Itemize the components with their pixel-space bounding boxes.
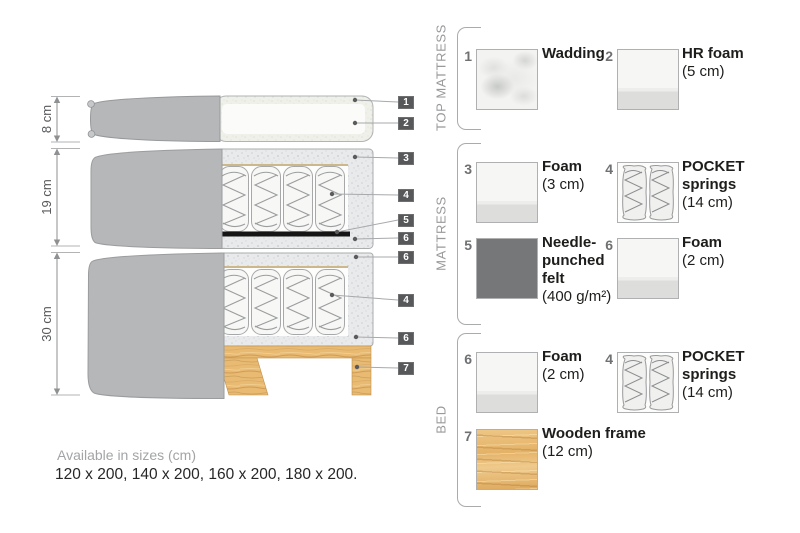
- section-title-bed: BED: [434, 390, 449, 450]
- dimension-lines: [51, 97, 80, 396]
- legend-number: 2: [599, 48, 613, 64]
- bed-section: [88, 253, 373, 399]
- swatch-pocket-springs-bed: [617, 352, 679, 413]
- dim-label-19cm: 19 cm: [39, 175, 55, 219]
- felt-layer: [219, 232, 350, 237]
- legend-item-name: Foam: [682, 234, 794, 252]
- legend-item-hr-foam: HR foam (5 cm): [682, 45, 794, 81]
- legend-item-pocket-springs: POCKET springs (14 cm): [682, 158, 794, 212]
- legend-item-name: POCKET springs: [682, 158, 794, 194]
- callout-chip-1: 1: [398, 96, 414, 109]
- available-sizes-list: 120 x 200, 140 x 200, 160 x 200, 180 x 2…: [55, 466, 358, 484]
- section-title-mattress: MATTRESS: [434, 189, 449, 279]
- mattress-construction-infographic: 1 2 3 4 5 6 6 4 6 7 8 cm 19 cm 30 cm TOP…: [0, 0, 800, 533]
- handle-button: [88, 101, 95, 108]
- swatch-foam-3cm: [476, 162, 538, 223]
- legend-number: 4: [599, 351, 613, 367]
- swatch-foam-2cm: [617, 238, 679, 299]
- handle-button: [88, 131, 95, 138]
- legend-item-size: (12 cm): [542, 443, 692, 461]
- legend-item-name: HR foam: [682, 45, 794, 63]
- callout-chip-5: 5: [398, 214, 414, 227]
- legend-item-name: Wooden frame: [542, 425, 692, 443]
- callout-chip-4: 4: [398, 189, 414, 202]
- legend-number: 6: [599, 237, 613, 253]
- callout-chip-4b: 4: [398, 294, 414, 307]
- callout-chip-7: 7: [398, 362, 414, 375]
- legend-number: 6: [458, 351, 472, 367]
- swatch-hr-foam: [617, 49, 679, 110]
- swatch-wood: [476, 429, 538, 490]
- callout-chip-6c: 6: [398, 332, 414, 345]
- legend-item-size: (14 cm): [682, 194, 794, 212]
- wood-leg-left: [218, 358, 268, 395]
- available-sizes-title: Available in sizes (cm): [57, 447, 196, 463]
- swatch-felt: [476, 238, 538, 299]
- dim-label-30cm: 30 cm: [39, 302, 55, 346]
- legend-item-name: POCKET springs: [682, 348, 794, 384]
- swatch-pocket-springs: [617, 162, 679, 223]
- callout-chip-6b: 6: [398, 251, 414, 264]
- legend-number: 1: [458, 48, 472, 64]
- legend-item-pocket-springs-bed: POCKET springs (14 cm): [682, 348, 794, 402]
- legend-item-size: (2 cm): [682, 252, 794, 270]
- callout-chip-6: 6: [398, 232, 414, 245]
- dim-label-8cm: 8 cm: [39, 97, 55, 141]
- legend-number: 5: [458, 237, 472, 253]
- top-mattress-section: [88, 96, 373, 142]
- legend-item-size: (5 cm): [682, 63, 794, 81]
- wood-rail: [218, 346, 371, 358]
- section-title-top-mattress: TOP MATTRESS: [434, 23, 449, 133]
- callout-chip-3: 3: [398, 152, 414, 165]
- legend-number: 4: [599, 161, 613, 177]
- legend-item-wooden-frame: Wooden frame (12 cm): [542, 425, 692, 461]
- mattress-section: [91, 149, 373, 249]
- wood-leg-right: [352, 358, 371, 395]
- legend-item-size: (14 cm): [682, 384, 794, 402]
- legend-number: 7: [458, 428, 472, 444]
- callout-chip-2: 2: [398, 117, 414, 130]
- legend-number: 3: [458, 161, 472, 177]
- legend-item-foam-2cm: Foam (2 cm): [682, 234, 794, 270]
- swatch-wadding: [476, 49, 538, 110]
- swatch-foam-2cm-bed: [476, 352, 538, 413]
